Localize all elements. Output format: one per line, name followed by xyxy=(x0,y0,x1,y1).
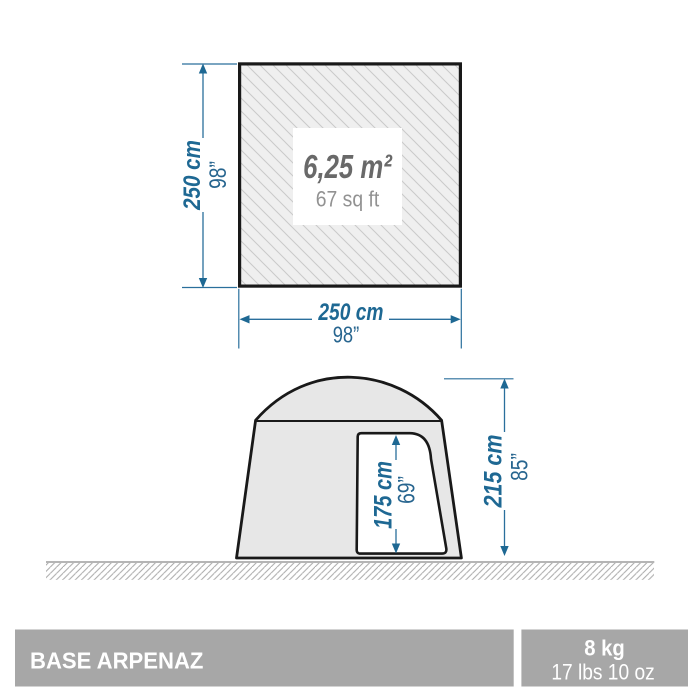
svg-text:67 sq ft: 67 sq ft xyxy=(316,187,380,211)
svg-text:8 kg: 8 kg xyxy=(584,636,625,661)
svg-text:85”: 85” xyxy=(505,453,533,481)
svg-text:69”: 69” xyxy=(392,476,420,504)
svg-text:215 cm: 215 cm xyxy=(479,435,507,509)
svg-text:6,25 m²: 6,25 m² xyxy=(303,149,393,186)
svg-text:BASE ARPENAZ: BASE ARPENAZ xyxy=(30,647,203,674)
svg-text:250 cm: 250 cm xyxy=(178,140,205,211)
svg-text:98”: 98” xyxy=(204,161,232,189)
svg-text:98”: 98” xyxy=(333,322,360,347)
svg-text:250 cm: 250 cm xyxy=(317,298,383,326)
svg-text:17 lbs 10 oz: 17 lbs 10 oz xyxy=(551,660,654,684)
